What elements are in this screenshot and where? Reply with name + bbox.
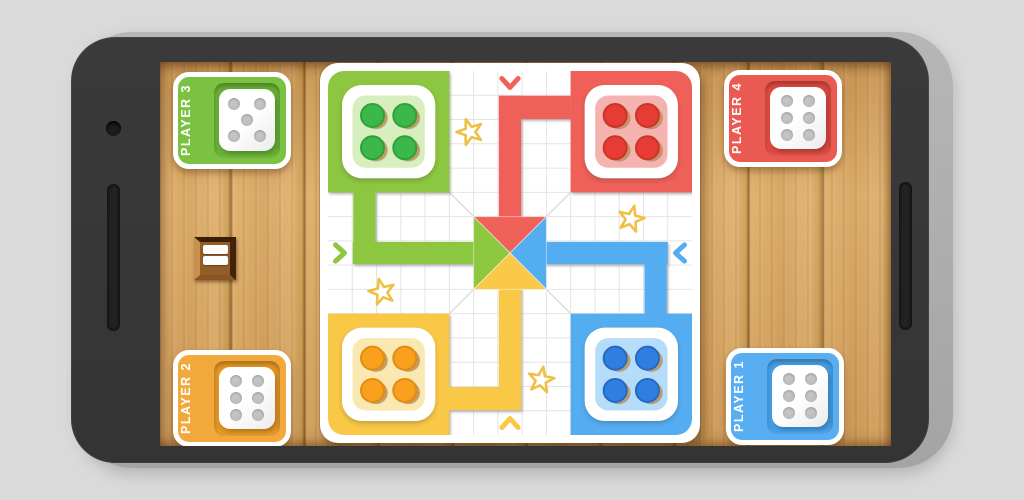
- dice-inset-1: [767, 359, 833, 434]
- dice-inset-2: [214, 361, 280, 436]
- dice-3[interactable]: [219, 89, 275, 151]
- player-3-label: PLAYER 3: [179, 81, 199, 160]
- speaker-grille-right-icon: [899, 182, 912, 330]
- player-card-3[interactable]: PLAYER 3: [173, 72, 291, 169]
- page-background: PLAYER 3 PLAYER 4 PLAYER 2 PLAYER 1: [0, 0, 1024, 500]
- camera-icon: [106, 121, 121, 136]
- dice-inset-4: [765, 81, 831, 156]
- dice-inset-3: [214, 83, 280, 158]
- ludo-board[interactable]: [320, 63, 700, 443]
- player-4-label: PLAYER 4: [730, 79, 750, 158]
- dice-4[interactable]: [770, 87, 826, 149]
- board-svg[interactable]: [328, 71, 692, 435]
- wooden-menu-button[interactable]: [194, 237, 236, 280]
- player-card-4[interactable]: PLAYER 4: [724, 70, 842, 167]
- player-card-2[interactable]: PLAYER 2: [173, 350, 291, 446]
- player-card-1[interactable]: PLAYER 1: [726, 348, 844, 445]
- dice-2[interactable]: [219, 367, 275, 429]
- game-screen: PLAYER 3 PLAYER 4 PLAYER 2 PLAYER 1: [160, 62, 891, 446]
- speaker-grille-icon: [107, 184, 120, 331]
- dice-1[interactable]: [772, 365, 828, 427]
- player-2-label: PLAYER 2: [179, 359, 199, 438]
- menu-bars-icon: [200, 245, 230, 266]
- player-1-label: PLAYER 1: [732, 357, 752, 436]
